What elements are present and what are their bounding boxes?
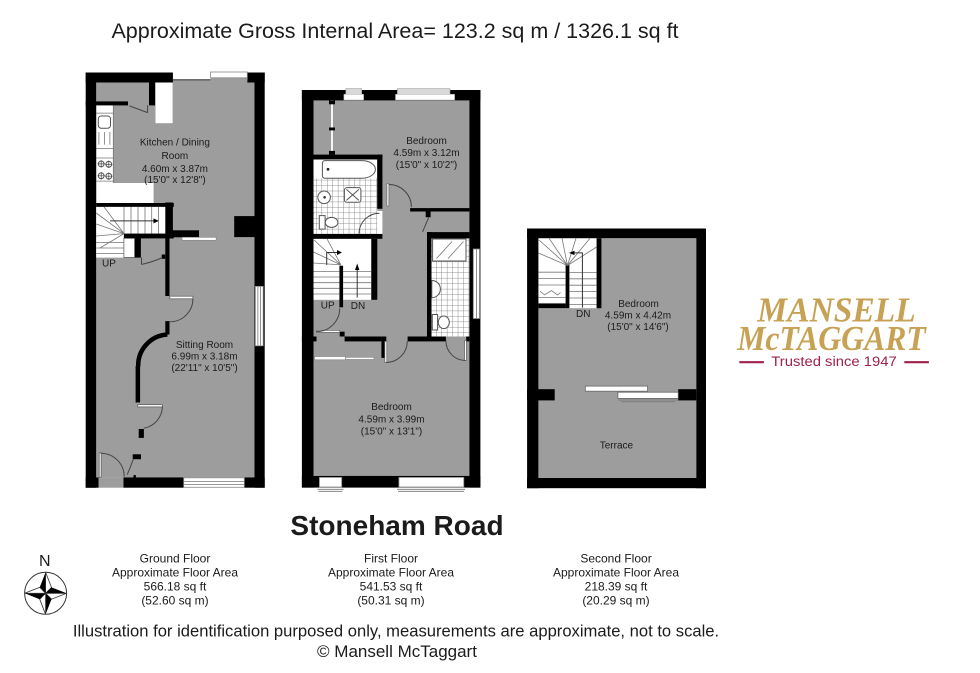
svg-text:First Floor: First Floor	[364, 552, 418, 566]
svg-text:Ground Floor: Ground Floor	[140, 552, 211, 566]
svg-text:Second Floor: Second Floor	[580, 552, 651, 566]
svg-text:Approximate Floor Area: Approximate Floor Area	[328, 566, 454, 580]
svg-text:Bedroom: Bedroom	[406, 136, 447, 147]
svg-text:(15'0" x 12'8"): (15'0" x 12'8")	[144, 175, 206, 186]
svg-text:(15'0" x 14'6"): (15'0" x 14'6")	[607, 322, 669, 333]
svg-text:Approximate Floor Area: Approximate Floor Area	[553, 566, 679, 580]
svg-text:4.59m x 3.99m: 4.59m x 3.99m	[358, 414, 424, 425]
svg-text:(52.60 sq m): (52.60 sq m)	[141, 594, 208, 608]
svg-text:541.53 sq ft: 541.53 sq ft	[360, 580, 423, 594]
svg-text:566.18 sq ft: 566.18 sq ft	[144, 580, 207, 594]
svg-text:Stoneham Road: Stoneham Road	[290, 510, 503, 541]
svg-text:(15'0" x 10'2"): (15'0" x 10'2")	[396, 160, 458, 171]
svg-text:UP: UP	[102, 259, 116, 270]
svg-text:© Mansell McTaggart: © Mansell McTaggart	[317, 642, 477, 661]
svg-text:4.60m x 3.87m: 4.60m x 3.87m	[142, 164, 208, 175]
svg-text:(20.29 sq m): (20.29 sq m)	[582, 594, 649, 608]
svg-text:4.59m x 4.42m: 4.59m x 4.42m	[605, 311, 671, 322]
svg-text:6.99m x 3.18m: 6.99m x 3.18m	[171, 352, 237, 363]
svg-text:218.39 sq ft: 218.39 sq ft	[585, 580, 648, 594]
svg-text:(50.31 sq m): (50.31 sq m)	[357, 594, 424, 608]
svg-text:McTAGGART: McTAGGART	[736, 320, 927, 358]
svg-text:Bedroom: Bedroom	[371, 402, 412, 413]
svg-text:(22'11" x 10'5"): (22'11" x 10'5")	[171, 363, 237, 374]
svg-text:Approximate Gross Internal Are: Approximate Gross Internal Area= 123.2 s…	[111, 19, 678, 43]
svg-text:Room: Room	[162, 151, 189, 162]
svg-text:DN: DN	[576, 309, 590, 320]
svg-text:(15'0" x 13'1"): (15'0" x 13'1")	[361, 426, 423, 437]
svg-text:DN: DN	[351, 301, 365, 312]
svg-text:UP: UP	[321, 300, 335, 311]
svg-text:Trusted since 1947: Trusted since 1947	[771, 354, 896, 369]
svg-text:4.59m x 3.12m: 4.59m x 3.12m	[393, 148, 459, 159]
svg-text:Approximate Floor Area: Approximate Floor Area	[112, 566, 238, 580]
svg-text:Terrace: Terrace	[600, 440, 634, 451]
svg-text:Kitchen / Dining: Kitchen / Dining	[140, 138, 210, 149]
svg-text:Sitting Room: Sitting Room	[176, 340, 233, 351]
svg-text:N: N	[39, 553, 51, 570]
svg-text:Bedroom: Bedroom	[618, 299, 659, 310]
svg-text:Illustration for identificatio: Illustration for identification purposed…	[73, 622, 719, 641]
